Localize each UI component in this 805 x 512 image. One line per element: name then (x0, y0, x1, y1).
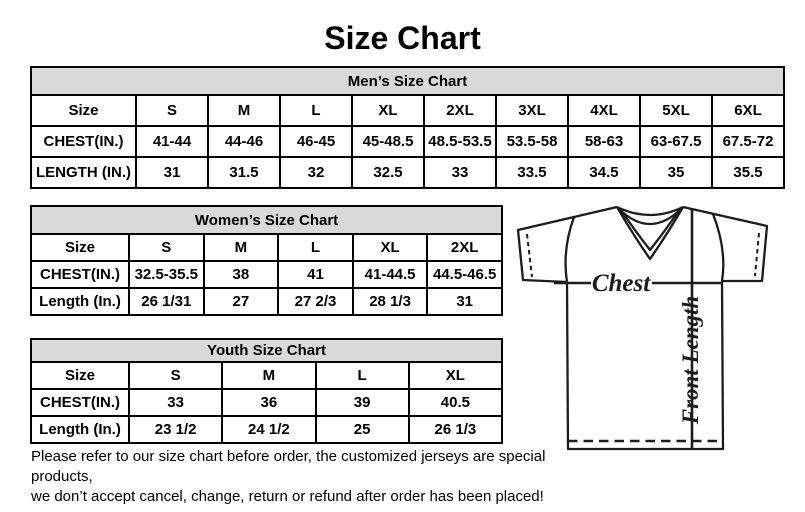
length-cell: 33 (424, 157, 496, 188)
size-cell: 2XL (427, 234, 502, 261)
size-cell: 5XL (640, 95, 712, 126)
length-cell: 27 2/3 (278, 288, 353, 315)
size-cell: 6XL (712, 95, 784, 126)
chest-cell: 48.5-53.5 (424, 126, 496, 157)
chest-cell: 40.5 (409, 389, 502, 416)
table-row: Size S M L XL 2XL (31, 234, 502, 261)
table-row: LENGTH (IN.) 31 31.5 32 32.5 33 33.5 34.… (31, 157, 784, 188)
row-label: Length (In.) (31, 288, 129, 315)
table-row: Length (In.) 23 1/2 24 1/2 25 26 1/3 (31, 416, 502, 443)
table-row: Size S M L XL 2XL 3XL 4XL 5XL 6XL (31, 95, 784, 126)
length-cell: 23 1/2 (129, 416, 222, 443)
row-label: Size (31, 234, 129, 261)
youth-size-table: Youth Size Chart Size S M L XL CHEST(IN.… (30, 338, 503, 444)
row-label: Size (31, 95, 136, 126)
right-cuff-dashed-line (755, 233, 759, 276)
length-cell: 31 (427, 288, 502, 315)
size-cell: S (136, 95, 208, 126)
disclaimer: Please refer to our size chart before or… (31, 447, 561, 507)
size-cell: XL (353, 234, 428, 261)
size-cell: XL (352, 95, 424, 126)
length-cell: 35 (640, 157, 712, 188)
chest-cell: 58-63 (568, 126, 640, 157)
size-cell: M (222, 362, 315, 389)
length-cell: 34.5 (568, 157, 640, 188)
row-label: Length (In.) (31, 416, 129, 443)
chest-cell: 41-44.5 (353, 261, 428, 288)
size-cell: L (278, 234, 353, 261)
size-cell: L (316, 362, 409, 389)
left-cuff-dashed-line (527, 234, 532, 277)
length-cell: 27 (204, 288, 279, 315)
row-label: CHEST(IN.) (31, 389, 129, 416)
size-cell: 4XL (568, 95, 640, 126)
size-cell: S (129, 362, 222, 389)
table-row: CHEST(IN.) 33 36 39 40.5 (31, 389, 502, 416)
length-cell: 31.5 (208, 157, 280, 188)
youth-table-header: Youth Size Chart (31, 339, 502, 362)
row-label: LENGTH (IN.) (31, 157, 136, 188)
disclaimer-line-2: we don’t accept cancel, change, return o… (31, 487, 561, 507)
mens-table-header: Men’s Size Chart (31, 67, 784, 95)
table-row: Length (In.) 26 1/31 27 27 2/3 28 1/3 31 (31, 288, 502, 315)
row-label: Size (31, 362, 129, 389)
chest-cell: 39 (316, 389, 409, 416)
page-title: Size Chart (0, 20, 805, 57)
chest-cell: 41-44 (136, 126, 208, 157)
table-row: CHEST(IN.) 41-44 44-46 46-45 45-48.5 48.… (31, 126, 784, 157)
size-chart-page: Size Chart Men’s Size Chart Size S M L X… (0, 0, 805, 512)
length-cell: 31 (136, 157, 208, 188)
length-cell: 32.5 (352, 157, 424, 188)
length-cell: 33.5 (496, 157, 568, 188)
chest-cell: 33 (129, 389, 222, 416)
womens-table-header: Women’s Size Chart (31, 206, 502, 234)
chest-cell: 41 (278, 261, 353, 288)
length-cell: 32 (280, 157, 352, 188)
size-cell: 3XL (496, 95, 568, 126)
length-cell: 26 1/3 (409, 416, 502, 443)
chest-cell: 53.5-58 (496, 126, 568, 157)
chest-cell: 46-45 (280, 126, 352, 157)
size-cell: S (129, 234, 204, 261)
size-cell: L (280, 95, 352, 126)
chest-cell: 38 (204, 261, 279, 288)
chest-cell: 63-67.5 (640, 126, 712, 157)
chest-cell: 44-46 (208, 126, 280, 157)
row-label: CHEST(IN.) (31, 126, 136, 157)
table-row: CHEST(IN.) 32.5-35.5 38 41 41-44.5 44.5-… (31, 261, 502, 288)
disclaimer-line-1: Please refer to our size chart before or… (31, 447, 561, 487)
chest-label: Chest (592, 270, 651, 297)
collar-back-arc-shallow (617, 207, 683, 215)
length-cell: 25 (316, 416, 409, 443)
length-cell: 28 1/3 (353, 288, 428, 315)
front-length-label: Front Length (678, 296, 703, 425)
size-cell: XL (409, 362, 502, 389)
size-cell: 2XL (424, 95, 496, 126)
chest-cell: 36 (222, 389, 315, 416)
table-row: Size S M L XL (31, 362, 502, 389)
size-cell: M (204, 234, 279, 261)
chest-cell: 67.5-72 (712, 126, 784, 157)
right-armhole-curve (713, 214, 723, 281)
womens-size-table: Women’s Size Chart Size S M L XL 2XL CHE… (30, 205, 503, 316)
jersey-measurement-diagram: Chest Front Length (510, 195, 800, 465)
chest-cell: 32.5-35.5 (129, 261, 204, 288)
left-armhole-curve (566, 217, 574, 282)
chest-cell: 45-48.5 (352, 126, 424, 157)
length-cell: 26 1/31 (129, 288, 204, 315)
mens-size-table: Men’s Size Chart Size S M L XL 2XL 3XL 4… (30, 66, 785, 189)
length-cell: 24 1/2 (222, 416, 315, 443)
chest-cell: 44.5-46.5 (427, 261, 502, 288)
size-cell: M (208, 95, 280, 126)
row-label: CHEST(IN.) (31, 261, 129, 288)
right-sleeve-outline (683, 207, 767, 281)
length-cell: 35.5 (712, 157, 784, 188)
